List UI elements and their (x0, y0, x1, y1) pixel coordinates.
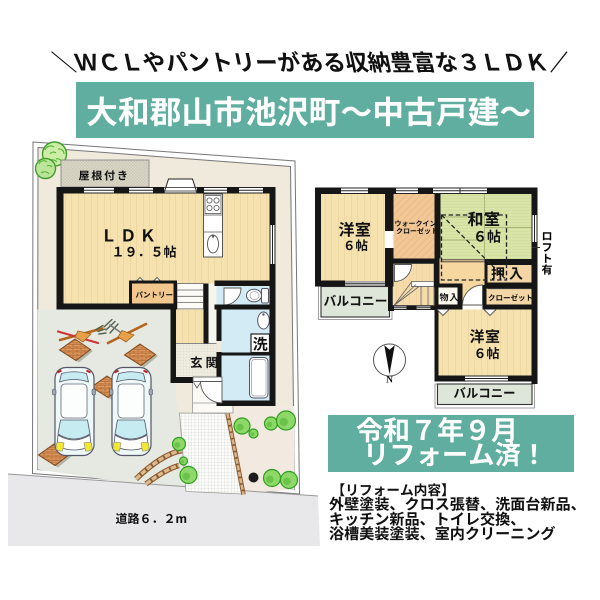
svg-text:N: N (386, 376, 393, 386)
